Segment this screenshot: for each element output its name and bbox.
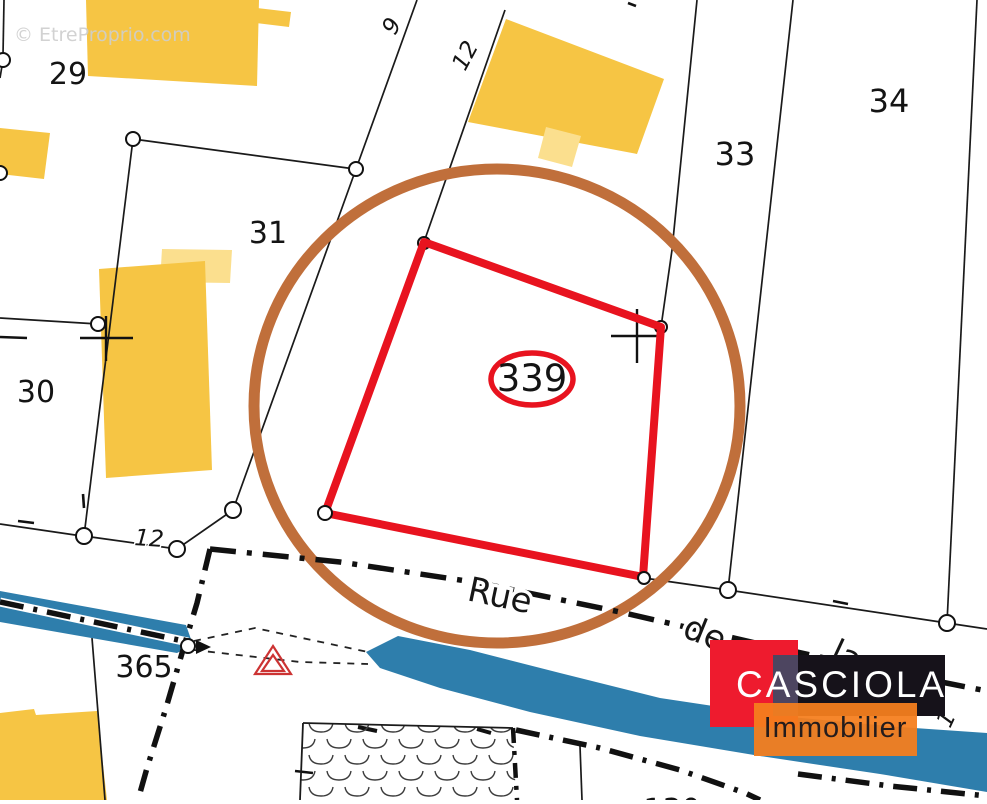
street-word-de: de <box>678 607 732 660</box>
flow-arrow-marker <box>181 639 211 654</box>
parcel-label-29: 29 <box>49 57 87 92</box>
measure-9: 9 <box>377 14 407 39</box>
map-canvas: 339 29 31 30 33 34 365 130 Rue de la 9 1… <box>0 0 987 800</box>
parcel-label-365: 365 <box>115 650 172 685</box>
vertex-marker <box>638 572 650 584</box>
parcel-label-31: 31 <box>249 216 287 251</box>
vertex-marker <box>76 528 92 544</box>
vertex-marker <box>0 53 10 67</box>
vertex-marker <box>91 317 105 331</box>
vertex-marker <box>939 615 955 631</box>
measure-1: 1 <box>932 707 962 731</box>
parcel-label-partial-130: 130 <box>643 793 700 800</box>
parcel-339-badge: 339 <box>491 353 573 405</box>
cadastral-map: 339 29 31 30 33 34 365 130 Rue de la 9 1… <box>0 0 987 800</box>
building <box>256 8 291 27</box>
street-word-rue: Rue <box>464 570 535 623</box>
measure-12-top: 12 <box>447 37 484 75</box>
vertex-marker <box>349 162 363 176</box>
vertex-marker <box>318 506 332 520</box>
parcel-339-outline <box>325 242 661 577</box>
marsh-area <box>300 723 517 800</box>
triangle-symbol <box>255 646 291 674</box>
watermark-text: © EtreProprio.com <box>14 24 191 46</box>
measure-12-bottom: 12 <box>134 525 165 553</box>
parcel-label-33: 33 <box>715 135 756 173</box>
parcel-label-30: 30 <box>17 375 55 410</box>
highlight-circle <box>254 169 740 643</box>
building <box>99 261 212 478</box>
vertex-marker <box>0 166 7 180</box>
vertex-marker <box>126 132 140 146</box>
parcel-339-label: 339 <box>497 357 568 400</box>
street-word-la: la <box>824 632 868 681</box>
vertex-marker <box>169 541 185 557</box>
parcel-label-34: 34 <box>869 82 910 120</box>
vertex-marker <box>225 502 241 518</box>
vertex-marker <box>720 582 736 598</box>
building <box>0 709 107 800</box>
